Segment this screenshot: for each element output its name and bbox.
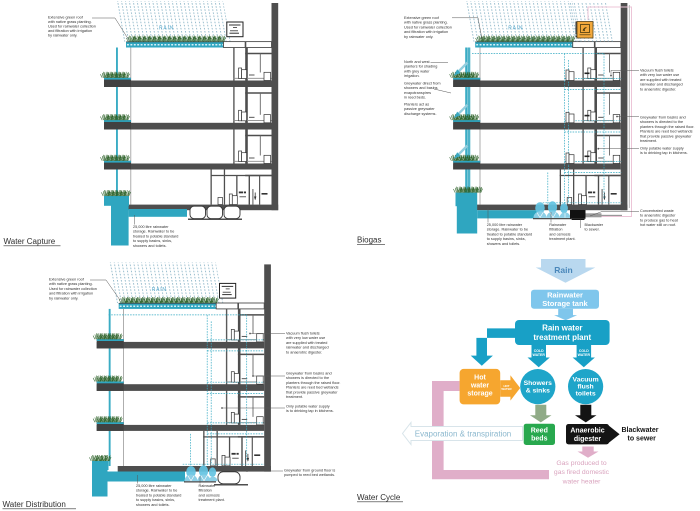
svg-text:North and west: North and west (404, 60, 430, 64)
svg-text:Biogas: Biogas (357, 236, 381, 245)
svg-text:to supply basins, sinks,: to supply basins, sinks, (136, 498, 175, 502)
svg-text:Rainwater: Rainwater (549, 223, 567, 227)
svg-text:treatment plant: treatment plant (533, 333, 591, 342)
svg-text:Rain: Rain (554, 265, 572, 275)
svg-text:showers is directed to the: showers is directed to the (286, 376, 329, 380)
svg-text:to supply basins, sinks,: to supply basins, sinks, (133, 239, 172, 243)
svg-text:Rain water: Rain water (542, 324, 582, 333)
svg-text:Extensive green roof: Extensive green roof (404, 16, 440, 20)
svg-text:WATER: WATER (578, 353, 591, 357)
svg-text:and osmosis: and osmosis (549, 232, 570, 236)
svg-text:by rainwater only.: by rainwater only. (48, 34, 77, 38)
svg-text:Only potable water supply: Only potable water supply (640, 147, 684, 151)
svg-text:Storage tank: Storage tank (542, 299, 588, 308)
svg-text:Only potable water supply: Only potable water supply (286, 405, 330, 409)
svg-text:are supplied with treated: are supplied with treated (286, 341, 327, 345)
svg-text:Reed: Reed (531, 428, 548, 435)
svg-text:treatment.: treatment. (286, 395, 303, 399)
svg-text:Extensive green roof: Extensive green roof (48, 16, 84, 20)
svg-text:is to drinking tap in kitchens: is to drinking tap in kitchens. (640, 151, 688, 155)
svg-text:to anaerobic digester: to anaerobic digester (640, 214, 676, 218)
svg-text:storage. Rainwater to be: storage. Rainwater to be (133, 230, 174, 234)
svg-text:to sewer.: to sewer. (585, 228, 600, 232)
svg-text:WATER: WATER (533, 353, 546, 357)
svg-text:by rainwater only.: by rainwater only. (49, 296, 78, 300)
svg-text:25,000 litre rainwater: 25,000 litre rainwater (133, 225, 169, 229)
svg-text:Water Distribution: Water Distribution (3, 500, 66, 509)
svg-text:Hot: Hot (474, 375, 486, 382)
svg-text:with very low water use: with very low water use (286, 336, 325, 340)
svg-text:planters through the raised fl: planters through the raised floor. (640, 125, 694, 129)
svg-text:Blackwater: Blackwater (585, 223, 604, 227)
svg-text:treated to potable standard: treated to potable standard (133, 234, 178, 238)
svg-text:irrigation.: irrigation. (404, 74, 420, 78)
svg-text:and filtration with irrigation: and filtration with irrigation (48, 29, 92, 33)
svg-text:filtration: filtration (199, 489, 212, 493)
svg-text:rainwater and discharged: rainwater and discharged (286, 346, 329, 350)
svg-text:Rainwater: Rainwater (199, 484, 217, 488)
svg-text:are supplied with treated: are supplied with treated (640, 78, 681, 82)
svg-text:Blackwater: Blackwater (622, 427, 659, 434)
svg-text:planters for shading: planters for shading (404, 65, 437, 69)
svg-text:flush: flush (577, 384, 593, 391)
svg-text:filtration: filtration (549, 228, 562, 232)
svg-text:Planters are reed bed wetlands: Planters are reed bed wetlands (286, 386, 339, 390)
svg-text:Extensive green roof: Extensive green roof (49, 278, 85, 282)
svg-text:treatment plant.: treatment plant. (549, 237, 575, 241)
svg-text:and filtration with irrigation: and filtration with irrigation (49, 292, 93, 296)
svg-text:25,000 litre rainwater: 25,000 litre rainwater (487, 223, 523, 227)
svg-text:storage. Rainwater to be: storage. Rainwater to be (136, 489, 177, 493)
svg-text:Planters act as: Planters act as (404, 103, 429, 107)
svg-text:water: water (470, 383, 490, 390)
svg-text:Greywater from ground floor is: Greywater from ground floor is (284, 469, 335, 473)
svg-text:Vacuum flush toilets: Vacuum flush toilets (640, 69, 674, 73)
svg-text:to sewer: to sewer (628, 436, 657, 443)
svg-text:in reed beds.: in reed beds. (404, 96, 426, 100)
svg-text:Used for rainwater collection: Used for rainwater collection (49, 287, 97, 291)
svg-text:digester: digester (574, 436, 602, 443)
svg-text:pumped to reed bed wetlands.: pumped to reed bed wetlands. (284, 473, 335, 477)
svg-text:Gas produced to: Gas produced to (556, 460, 606, 467)
svg-text:Anaerobic: Anaerobic (570, 428, 604, 435)
svg-text:Vacuum flush toilets: Vacuum flush toilets (286, 332, 320, 336)
svg-text:to anaerobic digester.: to anaerobic digester. (640, 87, 676, 91)
svg-text:to supply basins, sinks,: to supply basins, sinks, (487, 237, 526, 241)
svg-text:evapotranspires: evapotranspires (404, 91, 431, 95)
svg-text:Greywater from basins and: Greywater from basins and (286, 372, 332, 376)
svg-text:with native grass planting.: with native grass planting. (49, 282, 93, 286)
svg-text:Water Cycle: Water Cycle (357, 493, 401, 502)
svg-text:storage: storage (467, 391, 492, 398)
svg-text:passive greywater: passive greywater (404, 107, 435, 111)
svg-text:rainwater and discharged: rainwater and discharged (640, 83, 683, 87)
svg-text:to produce gas to heat: to produce gas to heat (640, 218, 679, 222)
svg-text:Greywater direct from: Greywater direct from (404, 82, 441, 86)
svg-text:hot water still on roof.: hot water still on roof. (640, 223, 676, 227)
svg-text:Evaporation & transpiration: Evaporation & transpiration (415, 430, 512, 439)
svg-text:discharge systems.: discharge systems. (404, 112, 437, 116)
svg-text:treated to potable standard: treated to potable standard (136, 493, 181, 497)
svg-text:showers and toilets.: showers and toilets. (487, 242, 521, 246)
svg-text:treatment.: treatment. (640, 139, 657, 143)
svg-text:showers and basins: showers and basins (404, 86, 438, 90)
svg-text:25,000 litre rainwater: 25,000 litre rainwater (136, 484, 172, 488)
svg-text:& sinks: & sinks (526, 388, 550, 395)
svg-text:beds: beds (531, 436, 547, 443)
svg-text:that provide passive greywater: that provide passive greywater (640, 134, 692, 138)
svg-text:and osmosis: and osmosis (199, 493, 220, 497)
svg-text:water heater: water heater (562, 479, 602, 486)
svg-text:Greywater from basins and: Greywater from basins and (640, 116, 686, 120)
svg-text:gas fired domestic: gas fired domestic (554, 469, 610, 476)
svg-text:treatment plant.: treatment plant. (199, 498, 225, 502)
svg-text:Used for rainwater collection: Used for rainwater collection (48, 25, 96, 29)
svg-text:that provide passive greywater: that provide passive greywater (286, 390, 338, 394)
svg-text:with native grass planting.: with native grass planting. (48, 20, 92, 24)
svg-text:Used for rainwater collection: Used for rainwater collection (404, 25, 452, 29)
svg-text:and filtration with irrigation: and filtration with irrigation (404, 30, 448, 34)
svg-text:planters through the raised fl: planters through the raised floor. (286, 381, 340, 385)
svg-text:with grey water: with grey water (404, 69, 430, 73)
svg-text:Vacuum: Vacuum (573, 376, 599, 383)
svg-text:to anaerobic digester.: to anaerobic digester. (286, 350, 322, 354)
svg-text:storage. Rainwater to be: storage. Rainwater to be (487, 228, 528, 232)
svg-text:with native grass planting.: with native grass planting. (404, 21, 448, 25)
svg-text:showers and toilets.: showers and toilets. (133, 244, 167, 248)
svg-text:showers and toilets.: showers and toilets. (136, 503, 170, 507)
svg-text:by rainwater only.: by rainwater only. (404, 35, 433, 39)
svg-text:treated to potable standard: treated to potable standard (487, 232, 532, 236)
svg-text:WATER: WATER (501, 387, 512, 391)
svg-text:Concentrated waste: Concentrated waste (640, 209, 674, 213)
svg-text:is to drinking tap in kitchens: is to drinking tap in kitchens. (286, 409, 334, 413)
svg-text:Showers: Showers (524, 380, 553, 387)
svg-text:Planters are reed bed wetlands: Planters are reed bed wetlands (640, 130, 693, 134)
svg-text:showers is directed to the: showers is directed to the (640, 120, 683, 124)
svg-text:with very low water use: with very low water use (640, 73, 679, 77)
svg-text:Water Capture: Water Capture (4, 237, 56, 246)
svg-text:toilets: toilets (576, 391, 596, 398)
